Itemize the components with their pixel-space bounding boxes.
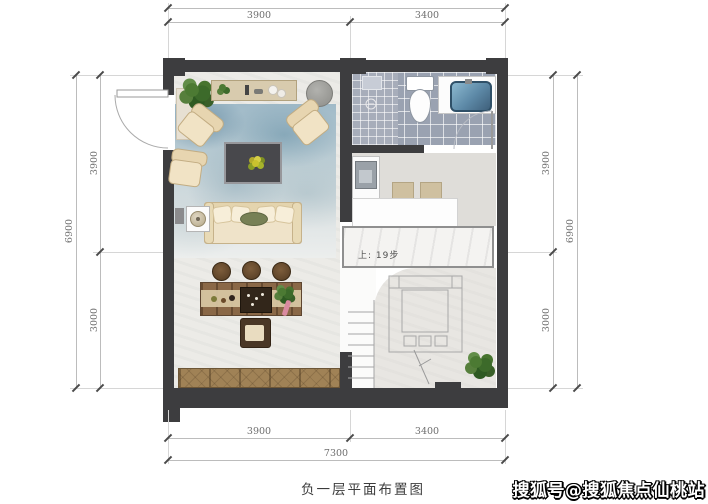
tea-chair — [240, 318, 271, 348]
chair-seat — [168, 159, 203, 188]
entry-door-arc — [115, 95, 168, 148]
dim-bottom-3400: 3400 — [397, 427, 457, 437]
sofa-cushion — [274, 205, 295, 225]
extension-line — [505, 3, 506, 58]
extension-line — [70, 388, 163, 389]
coffee-table — [224, 142, 282, 184]
dim-line-right-inner — [553, 75, 554, 388]
console-decor-bottle — [245, 85, 249, 95]
lower-room-floor — [374, 268, 496, 388]
extension-line — [508, 388, 583, 389]
plant-bottom-right — [470, 356, 482, 368]
tea-stool-2 — [242, 261, 261, 280]
tea-set-item — [229, 295, 235, 301]
vanity-counter — [438, 76, 496, 114]
dim-bottom-3900: 3900 — [229, 427, 289, 437]
shower-niche — [362, 76, 382, 90]
tea-chair-cushion — [245, 325, 264, 341]
console-decor-sphere — [277, 89, 286, 98]
console-decor-bowl — [254, 89, 263, 94]
sofa-lumbar-pillow — [240, 212, 268, 226]
extension-line — [70, 75, 163, 76]
dim-left-3900: 3900 — [89, 146, 101, 180]
plant-top-left — [185, 83, 199, 97]
console-decor-greenery — [219, 84, 226, 91]
tea-set-item — [279, 296, 285, 302]
floor-plan-sheet: 上: 19步 — [0, 0, 708, 504]
wall-right — [497, 60, 508, 408]
dim-right-3000: 3000 — [541, 303, 553, 337]
wall-divider — [340, 60, 352, 222]
console-table — [211, 80, 297, 101]
island-counter — [352, 198, 458, 228]
wall-pier-bottom-left — [163, 388, 180, 422]
extension-line — [168, 3, 169, 58]
dim-right-6900: 6900 — [565, 214, 577, 248]
tea-tray — [240, 287, 272, 313]
sofa — [204, 202, 302, 244]
dim-left-6900: 6900 — [64, 214, 76, 248]
dim-left-3000: 3000 — [89, 303, 101, 337]
watermark: 搜狐号@搜狐焦点仙桃站 — [513, 476, 706, 501]
dim-top-3900: 3900 — [229, 11, 289, 21]
entry-door-opening — [162, 95, 175, 150]
lounge-chair-2 — [168, 148, 209, 189]
kitchen-sink — [355, 161, 377, 189]
wall-divider-lower-stub — [340, 352, 352, 392]
dim-bottom-7300: 7300 — [306, 449, 366, 459]
wood-cabinet-strip — [178, 368, 340, 388]
stair-landing: 上: 19步 — [342, 226, 494, 268]
dim-top-3400: 3400 — [397, 11, 457, 21]
dim-line-top-inner — [168, 22, 505, 23]
table-lamp — [190, 211, 206, 227]
tea-set-item — [221, 298, 226, 303]
dim-line-left-inner — [100, 75, 101, 388]
tea-stool-3 — [272, 262, 291, 281]
dim-line-left-outer — [76, 75, 77, 388]
wall-speaker — [175, 208, 184, 224]
dim-line-top-outer — [168, 8, 505, 9]
dim-line-bottom-outer — [168, 460, 505, 461]
tea-set-item — [211, 296, 217, 302]
flower-centerpiece — [252, 160, 259, 167]
wall-pier-bottom-right — [435, 382, 461, 408]
tea-stool-1 — [212, 262, 231, 281]
plant-tea-table — [278, 288, 286, 296]
dim-top-7300: 7300 — [306, 0, 366, 3]
stairs-note: 上: 19步 — [358, 248, 399, 261]
extension-line — [508, 75, 583, 76]
entry-door-leaf — [117, 90, 168, 97]
dim-line-right-outer — [577, 75, 578, 388]
extension-line — [93, 252, 163, 253]
wall-bathroom-bottom — [340, 145, 424, 153]
drawing-caption: 负一层平面布置图 — [268, 478, 458, 498]
sink-basin — [450, 81, 492, 112]
dim-right-3900: 3900 — [541, 146, 553, 180]
dim-line-bottom-inner — [168, 438, 505, 439]
wall-top — [163, 60, 508, 72]
side-table — [186, 206, 210, 232]
